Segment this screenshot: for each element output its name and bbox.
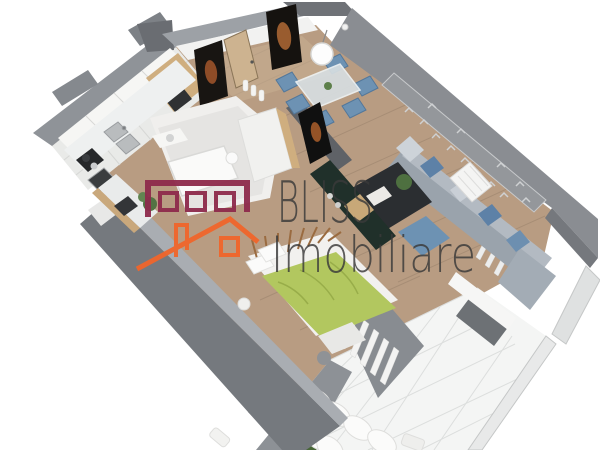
- table-plant: [324, 82, 332, 90]
- bedroom-pouf: [317, 351, 331, 365]
- toilet: [226, 152, 238, 164]
- bedside-table: [238, 298, 250, 310]
- real-estate-3d-floor-plan-image: BLISS Imobiliare: [0, 0, 600, 450]
- brand-line-2: Imobiliare: [271, 226, 476, 284]
- floor-plan-render: BLISS Imobiliare: [0, 0, 600, 450]
- pendant-lamp: [311, 43, 333, 65]
- ceiling-spot: [342, 24, 348, 30]
- sink-basin: [166, 134, 174, 142]
- coffee-table-plant: [396, 174, 412, 190]
- pan: [91, 163, 98, 170]
- pot: [82, 154, 90, 162]
- door-handle: [250, 60, 253, 63]
